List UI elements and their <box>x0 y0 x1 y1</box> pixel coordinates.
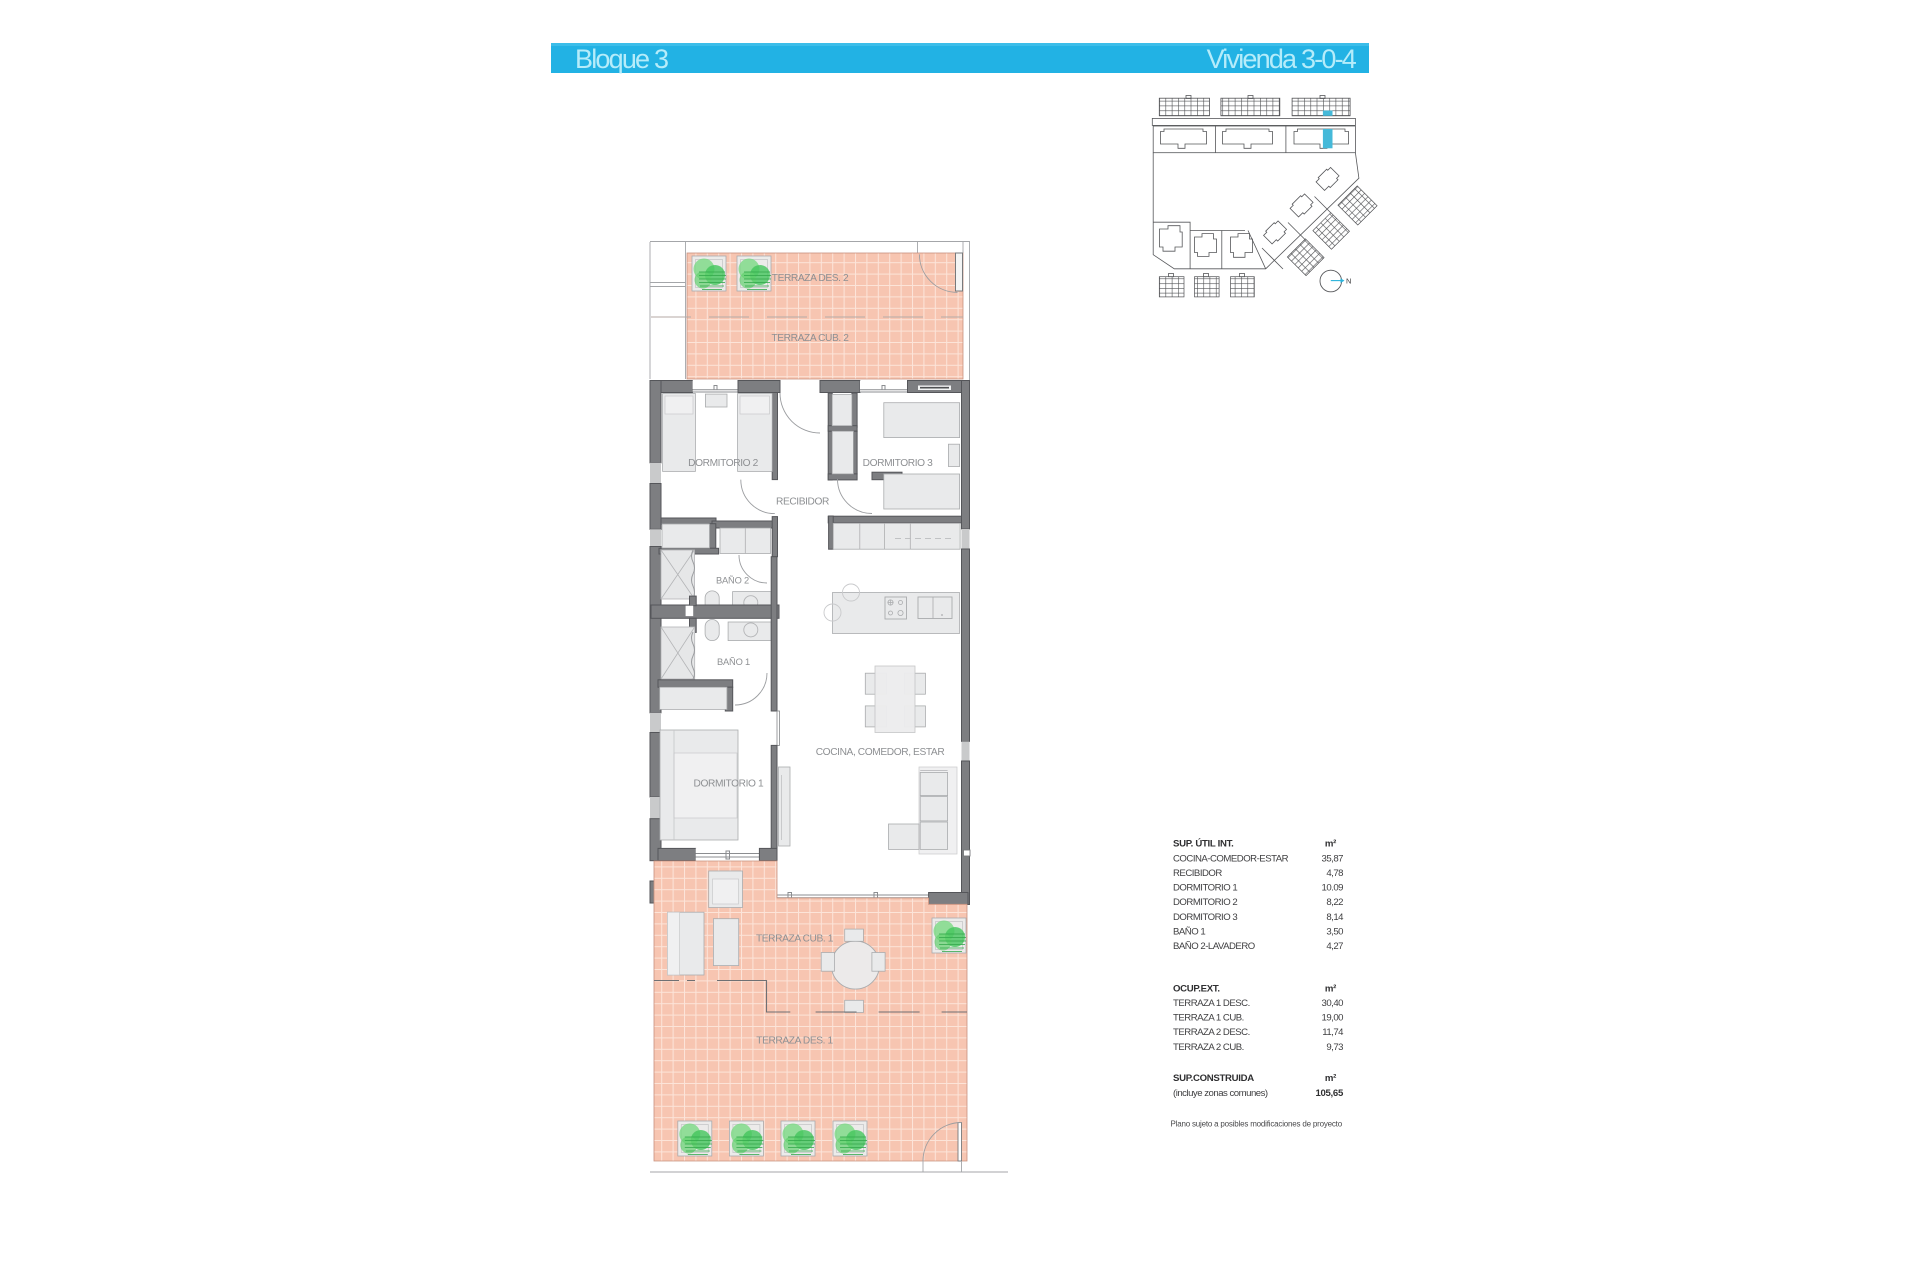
svg-text:Bloque 3: Bloque 3 <box>575 44 668 74</box>
svg-text:N: N <box>1346 277 1351 286</box>
svg-text:DORMITORIO 1: DORMITORIO 1 <box>1173 883 1237 894</box>
svg-text:35,87: 35,87 <box>1321 854 1343 865</box>
svg-text:RECIBIDOR: RECIBIDOR <box>1173 868 1222 879</box>
svg-text:4,78: 4,78 <box>1326 868 1343 879</box>
svg-text:m²: m² <box>1325 1073 1336 1084</box>
svg-text:19,00: 19,00 <box>1321 1013 1343 1024</box>
svg-text:Plano sujeto a posibles modifi: Plano sujeto a posibles modificaciones d… <box>1171 1120 1343 1129</box>
svg-text:9,73: 9,73 <box>1326 1042 1343 1053</box>
svg-text:BAÑO 2-LAVADERO: BAÑO 2-LAVADERO <box>1173 941 1255 952</box>
svg-text:COCINA-COMEDOR-ESTAR: COCINA-COMEDOR-ESTAR <box>1173 854 1289 865</box>
svg-text:SUP.CONSTRUIDA: SUP.CONSTRUIDA <box>1173 1073 1254 1084</box>
svg-text:m²: m² <box>1325 984 1336 995</box>
svg-text:OCUP.EXT.: OCUP.EXT. <box>1173 984 1220 995</box>
svg-text:105,65: 105,65 <box>1315 1088 1344 1099</box>
svg-text:4,27: 4,27 <box>1326 941 1343 952</box>
svg-text:m²: m² <box>1325 839 1336 850</box>
svg-text:BAÑO 1: BAÑO 1 <box>717 657 750 667</box>
svg-text:DORMITORIO 3: DORMITORIO 3 <box>1173 912 1237 923</box>
svg-text:8,14: 8,14 <box>1326 912 1344 923</box>
svg-text:10.09: 10.09 <box>1321 883 1343 894</box>
svg-text:TERRAZA 2 DESC.: TERRAZA 2 DESC. <box>1173 1027 1250 1038</box>
svg-text:TERRAZA 1 DESC.: TERRAZA 1 DESC. <box>1173 998 1250 1009</box>
svg-text:TERRAZA CUB. 2: TERRAZA CUB. 2 <box>771 333 849 344</box>
svg-text:COCINA, COMEDOR, ESTAR: COCINA, COMEDOR, ESTAR <box>816 747 945 758</box>
svg-text:BAÑO 1: BAÑO 1 <box>1173 927 1205 938</box>
svg-text:TERRAZA DES. 1: TERRAZA DES. 1 <box>756 1036 833 1047</box>
svg-text:BAÑO 2: BAÑO 2 <box>716 576 749 586</box>
svg-text:TERRAZA 1 CUB.: TERRAZA 1 CUB. <box>1173 1013 1244 1024</box>
svg-text:RECIBIDOR: RECIBIDOR <box>776 497 829 508</box>
svg-text:11,74: 11,74 <box>1322 1027 1344 1038</box>
svg-text:TERRAZA CUB. 1: TERRAZA CUB. 1 <box>756 934 834 945</box>
svg-text:DORMITORIO 3: DORMITORIO 3 <box>863 458 933 469</box>
svg-text:DORMITORIO 2: DORMITORIO 2 <box>1173 897 1237 908</box>
svg-text:DORMITORIO 1: DORMITORIO 1 <box>694 779 764 790</box>
svg-text:3,50: 3,50 <box>1326 927 1343 938</box>
svg-text:30,40: 30,40 <box>1321 998 1343 1009</box>
svg-text:Vivienda 3-0-4: Vivienda 3-0-4 <box>1207 44 1357 74</box>
svg-text:TERRAZA 2 CUB.: TERRAZA 2 CUB. <box>1173 1042 1244 1053</box>
svg-text:DORMITORIO 2: DORMITORIO 2 <box>688 458 758 469</box>
svg-text:(incluye zonas comunes): (incluye zonas comunes) <box>1173 1088 1268 1099</box>
svg-text:SUP. ÚTIL INT.: SUP. ÚTIL INT. <box>1173 838 1233 850</box>
svg-text:TERRAZA DES. 2: TERRAZA DES. 2 <box>772 273 849 284</box>
svg-text:8,22: 8,22 <box>1326 897 1343 908</box>
